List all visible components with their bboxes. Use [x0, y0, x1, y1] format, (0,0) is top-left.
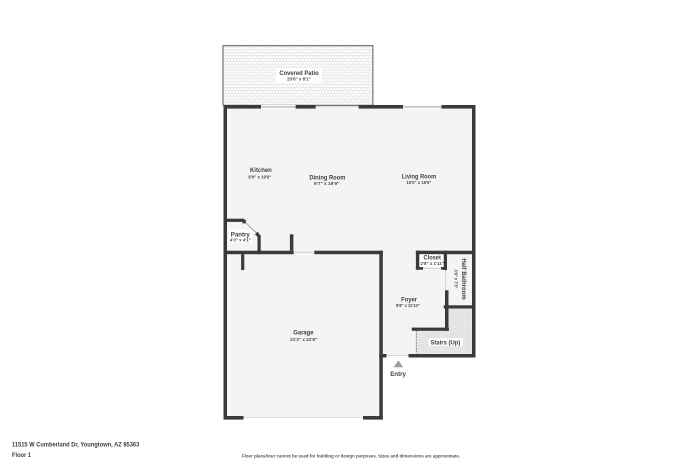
svg-text:3'6" x 7'3": 3'6" x 7'3" — [453, 270, 458, 289]
svg-text:4'3" x 4'1": 4'3" x 4'1" — [230, 238, 251, 243]
svg-text:11515 W Cumberland Dr, Youngto: 11515 W Cumberland Dr, Youngtown, AZ 853… — [12, 441, 140, 448]
svg-text:2'8" x 1'11": 2'8" x 1'11" — [421, 261, 444, 266]
svg-text:8'9" x 19'9": 8'9" x 19'9" — [248, 174, 271, 179]
svg-text:8'8" x 11'10": 8'8" x 11'10" — [396, 303, 420, 308]
svg-text:21'2" x 22'8": 21'2" x 22'8" — [290, 337, 317, 342]
svg-text:15'0" x 19'9": 15'0" x 19'9" — [406, 180, 431, 185]
svg-text:9'7" x 19'9": 9'7" x 19'9" — [314, 181, 339, 186]
svg-text:Floor plans/tour cannot be use: Floor plans/tour cannot be used for buil… — [242, 454, 460, 459]
svg-text:Floor 1: Floor 1 — [12, 452, 31, 459]
svg-text:Entry: Entry — [390, 371, 406, 378]
svg-text:Garage: Garage — [293, 330, 314, 337]
svg-text:Half Bathroom: Half Bathroom — [460, 258, 467, 299]
svg-text:Kitchen: Kitchen — [250, 167, 272, 174]
svg-text:Stairs (Up): Stairs (Up) — [430, 339, 460, 346]
svg-text:20'6" x 8'1": 20'6" x 8'1" — [287, 76, 311, 81]
